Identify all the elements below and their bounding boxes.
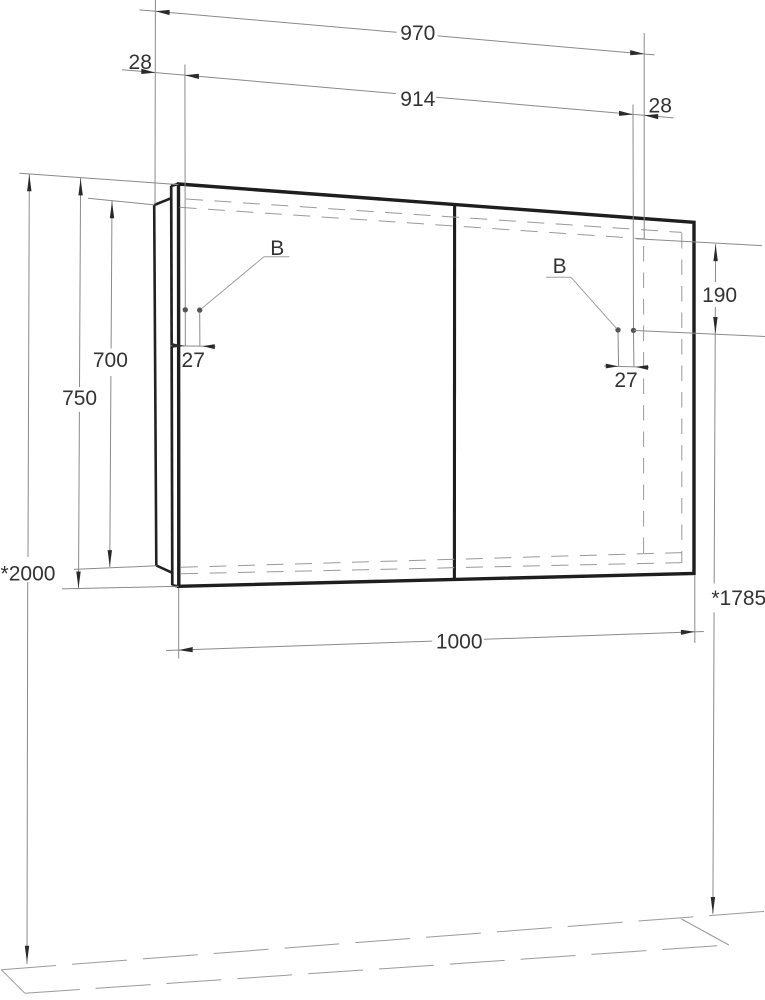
svg-text:*1785: *1785 <box>711 587 765 610</box>
svg-text:28: 28 <box>129 51 152 74</box>
svg-text:750: 750 <box>62 387 97 410</box>
svg-text:28: 28 <box>649 95 672 118</box>
svg-text:700: 700 <box>93 349 128 372</box>
svg-text:*2000: *2000 <box>1 563 56 586</box>
svg-text:1000: 1000 <box>436 631 483 654</box>
svg-text:190: 190 <box>702 284 737 307</box>
svg-text:27: 27 <box>182 349 205 372</box>
svg-text:B: B <box>553 255 567 278</box>
svg-text:B: B <box>270 237 284 260</box>
svg-text:27: 27 <box>614 369 637 392</box>
svg-text:914: 914 <box>400 88 435 111</box>
svg-text:970: 970 <box>400 22 435 45</box>
